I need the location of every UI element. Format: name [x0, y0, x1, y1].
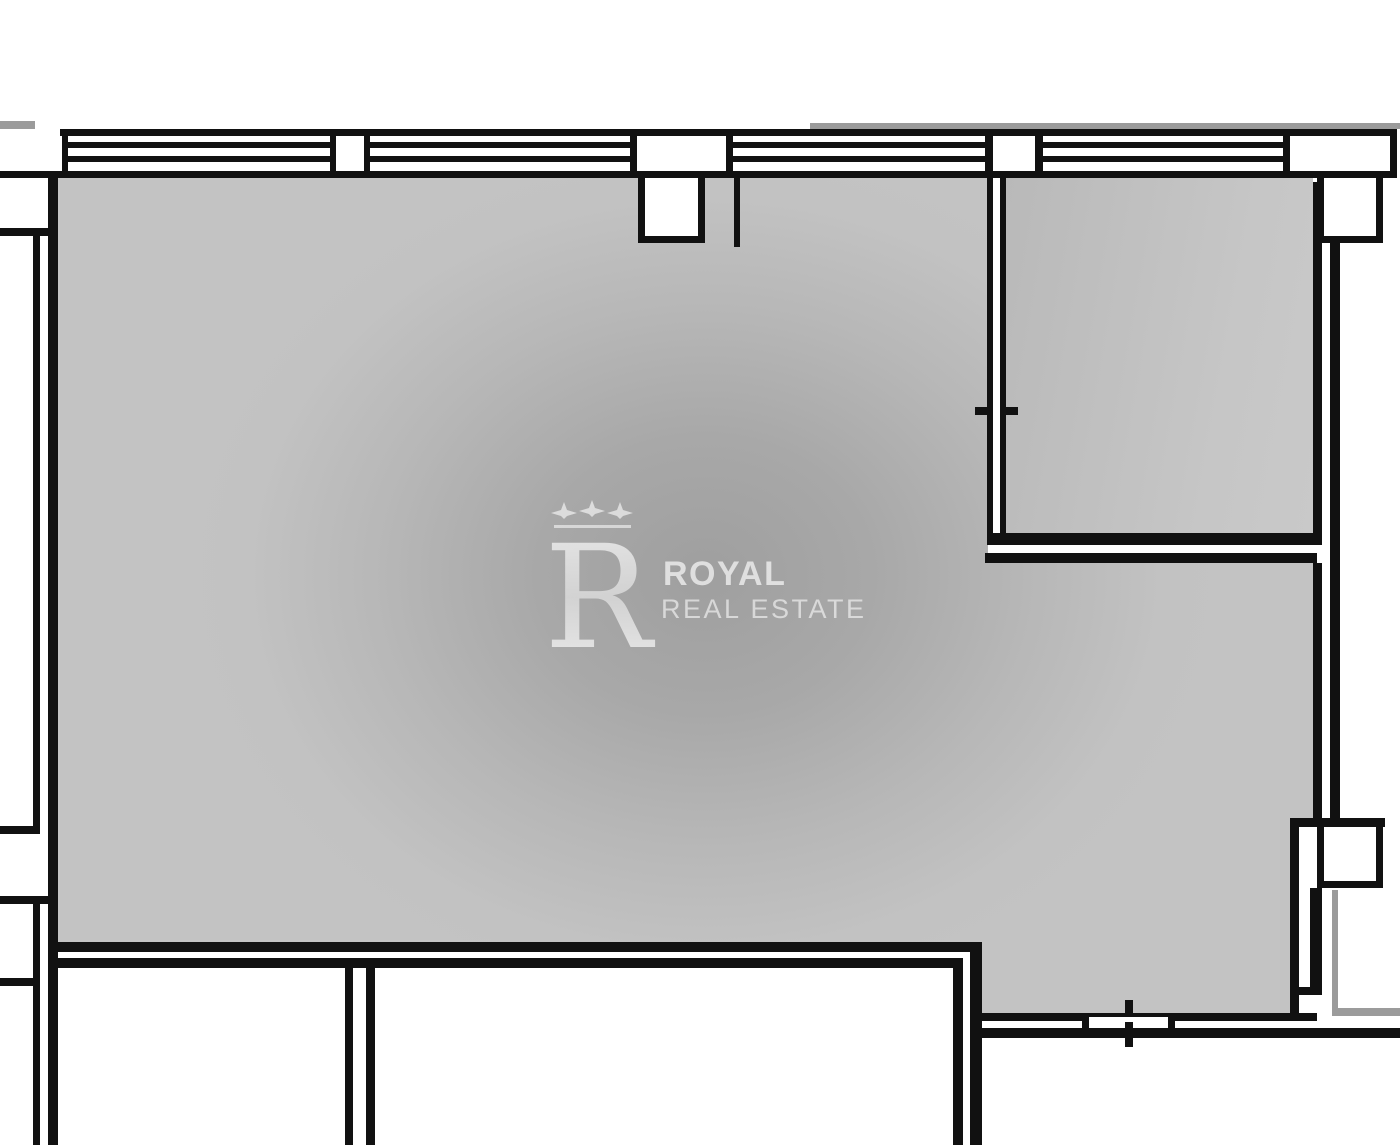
wall-segment	[1000, 178, 1006, 533]
wall-segment	[1390, 129, 1397, 178]
exterior-gray-line	[1332, 890, 1338, 1010]
wall-segment	[630, 129, 637, 178]
wall-segment	[0, 978, 38, 986]
watermark-brand-name: ROYAL	[663, 555, 786, 594]
wall-segment	[1168, 1013, 1175, 1038]
wall-segment	[987, 533, 1322, 545]
wall-segment	[953, 958, 963, 1145]
wall-segment	[345, 958, 353, 1145]
wall-segment	[733, 156, 985, 162]
wall-segment	[62, 129, 68, 178]
wall-segment	[0, 171, 1397, 178]
wall-segment	[1082, 1013, 1089, 1038]
wall-segment	[370, 142, 630, 148]
wall-segment	[1125, 1000, 1133, 1047]
wall-segment	[366, 958, 375, 1145]
wall-segment	[985, 129, 993, 178]
wall-segment	[726, 129, 733, 178]
wall-opening	[1089, 1017, 1168, 1022]
wall-segment	[48, 171, 58, 1145]
wall-segment	[57, 958, 963, 968]
exterior-gray-line	[1332, 1008, 1400, 1016]
wall-segment	[364, 129, 370, 178]
wall-segment	[1290, 818, 1385, 827]
column-box	[1317, 827, 1383, 888]
wall-segment	[982, 1028, 1400, 1038]
wall-segment	[1043, 142, 1283, 148]
wall-segment	[970, 942, 982, 1145]
wall-segment	[1292, 987, 1322, 995]
wall-segment	[68, 142, 330, 148]
logo-letter-r: R	[547, 514, 656, 665]
floor-plan: R ROYAL REAL ESTATE	[0, 0, 1400, 1145]
wall-segment	[1283, 129, 1290, 178]
wall-segment	[985, 553, 1317, 563]
wall-segment	[33, 900, 40, 1145]
wall-segment	[33, 232, 40, 832]
wall-segment	[1290, 827, 1299, 1013]
column-box	[638, 178, 705, 243]
wall-segment	[1043, 156, 1283, 162]
wall-segment	[330, 129, 336, 178]
column-box	[1317, 178, 1383, 243]
wall-segment	[734, 178, 740, 247]
exterior-gray-line	[0, 121, 35, 129]
watermark: R ROYAL REAL ESTATE	[547, 495, 877, 665]
wall-segment	[48, 942, 982, 952]
royal-logo-monogram: R	[547, 495, 657, 665]
wall-segment	[0, 896, 48, 904]
wall-segment	[1330, 243, 1340, 818]
wall-segment	[1310, 888, 1322, 992]
wall-segment	[733, 142, 985, 148]
wall-opening	[993, 178, 1000, 533]
exterior-gray-line	[810, 123, 1400, 129]
wall-segment	[370, 156, 630, 162]
wall-segment	[1313, 563, 1322, 818]
wall-segment	[0, 826, 40, 834]
wall-segment	[1035, 129, 1043, 178]
wall-segment	[68, 156, 330, 162]
watermark-brand-subtitle: REAL ESTATE	[661, 594, 867, 625]
top-right-room-floor	[1006, 178, 1313, 533]
wall-segment	[0, 228, 48, 236]
